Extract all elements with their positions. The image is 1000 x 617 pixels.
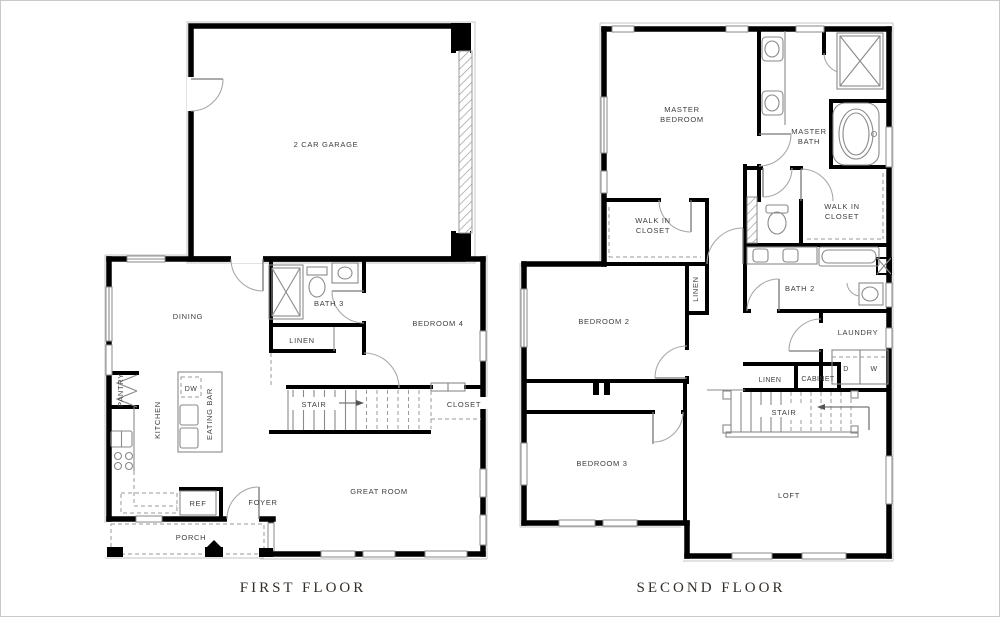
vanity-sink [762,91,783,115]
walkin-closet-left: WALK IN CLOSET [609,200,701,257]
bath2-vanity [747,247,817,264]
walkin-right-label-2: CLOSET [825,212,859,221]
walkin-right-door [801,169,833,201]
shower-fixture [269,265,303,319]
stair-direction-arrow [356,400,364,406]
laundry-label: LAUNDRY [838,328,879,337]
closet-label: CLOSET [447,400,481,409]
loft-label: LOFT [778,491,800,500]
bedroom2-label: BEDROOM 2 [578,317,629,326]
porch-post-cap [207,540,221,547]
master-tub [833,103,879,165]
eating-bar-label: EATING BAR [205,388,214,440]
first-floor-offset-lines [105,22,487,559]
foyer-label: FOYER [248,498,277,507]
garage-door [459,51,472,233]
floor-plan-canvas: 2 CAR GARAGE [1,1,1000,617]
porch-label: PORCH [176,533,207,542]
master-suite-entry-door [707,228,743,264]
wall-stub [593,381,599,395]
bath2-room: BATH 2 [747,247,883,311]
porch-post [205,547,223,557]
porch-post [259,548,273,557]
first-floor-title: FIRST FLOOR [240,580,367,596]
kitchen-sink [111,431,132,447]
bedroom4-closet-door [431,383,465,391]
dishwasher-label: DW [185,386,197,393]
master-bath-door [759,134,791,166]
garage-label: 2 CAR GARAGE [294,140,359,149]
vanity-sink [762,37,783,61]
floor-plan-page: 2 CAR GARAGE [0,0,1000,617]
first-floor-interior-walls [109,259,483,519]
great-room-label: GREAT ROOM [350,487,408,496]
kitchen-area: PANTRY KITCHEN DW EATING BAR [111,372,222,515]
toilet-fixture [307,267,327,297]
sink-fixture [332,263,358,283]
bath2-label: BATH 2 [785,284,815,293]
second-floor-title: SECOND FLOOR [637,580,786,596]
stair-newel [851,391,858,398]
bath2-tub [819,247,879,266]
dining-label: DINING [173,312,203,321]
toilet-room [747,168,792,243]
laundry-door [789,319,821,351]
stair-label: STAIR [301,400,326,409]
walkin-right-label-1: WALK IN [824,202,859,211]
master-bedroom-label-2: BEDROOM [660,115,704,124]
garage-side-door-opening [187,77,195,111]
bedroom2-door [655,346,687,378]
bedroom4-label: BEDROOM 4 [412,319,463,328]
refrigerator: REF [121,491,216,515]
ref-label: REF [189,499,206,508]
bedroom3-door [653,412,683,444]
walkin-left-label-2: CLOSET [636,226,670,235]
dryer-label: D [843,366,848,373]
cooktop [115,453,133,470]
shower-door [824,53,838,72]
stair-rail [726,432,858,437]
toilet-room-door [763,168,792,197]
stair2-label: STAIR [771,408,796,417]
bath3-room: BATH 3 LINEN [269,263,364,351]
master-bath-label-1: MASTER [791,127,826,136]
bath2-door [747,279,779,311]
bedroom4-room: BEDROOM 4 [364,319,465,391]
master-bedroom-label-1: MASTER [664,105,699,114]
first-floor-plan: 2 CAR GARAGE [105,22,489,596]
garage-side-door [191,79,223,111]
bedroom3-label: BEDROOM 3 [576,459,627,468]
second-floor-stair: STAIR [707,390,869,437]
bath3-label: BATH 3 [314,299,344,308]
toilet-fixture [766,205,788,234]
master-bedroom-room: MASTER BEDROOM [660,105,704,124]
garage-corner-pier [451,23,471,53]
kitchen-label: KITCHEN [153,401,162,439]
master-shower [824,33,883,89]
kitchen-island: DW EATING BAR [178,372,222,452]
stair-newel [723,391,731,399]
porch-area: PORCH [107,524,273,557]
bedroom3-room: BEDROOM 3 [576,412,683,468]
bedroom2-room: BEDROOM 2 [578,317,687,378]
cabinet-label: CABINET [801,376,834,383]
garage-entry-door [231,255,263,291]
shelf-strip [747,197,757,243]
washer-label: W [870,366,877,373]
garage-room: 2 CAR GARAGE [187,23,472,261]
porch-post [107,547,123,557]
second-floor-interior-walls [524,29,889,523]
pantry-label: PANTRY [116,373,125,407]
linen-label: LINEN [289,336,315,345]
hall-linen-label: LINEN [691,276,700,302]
master-bath-label-2: BATH [798,137,820,146]
wall-stub [604,381,610,395]
master-bath-room: MASTER BATH [759,31,883,166]
bath2-toilet [847,283,883,305]
bedroom4-door [364,353,399,388]
linen2-label: LINEN [759,377,782,384]
second-floor-plan: MASTER BEDROOM [520,23,893,596]
walkin-left-label-1: WALK IN [635,216,670,225]
walkin-closet-right: WALK IN CLOSET [801,169,883,239]
